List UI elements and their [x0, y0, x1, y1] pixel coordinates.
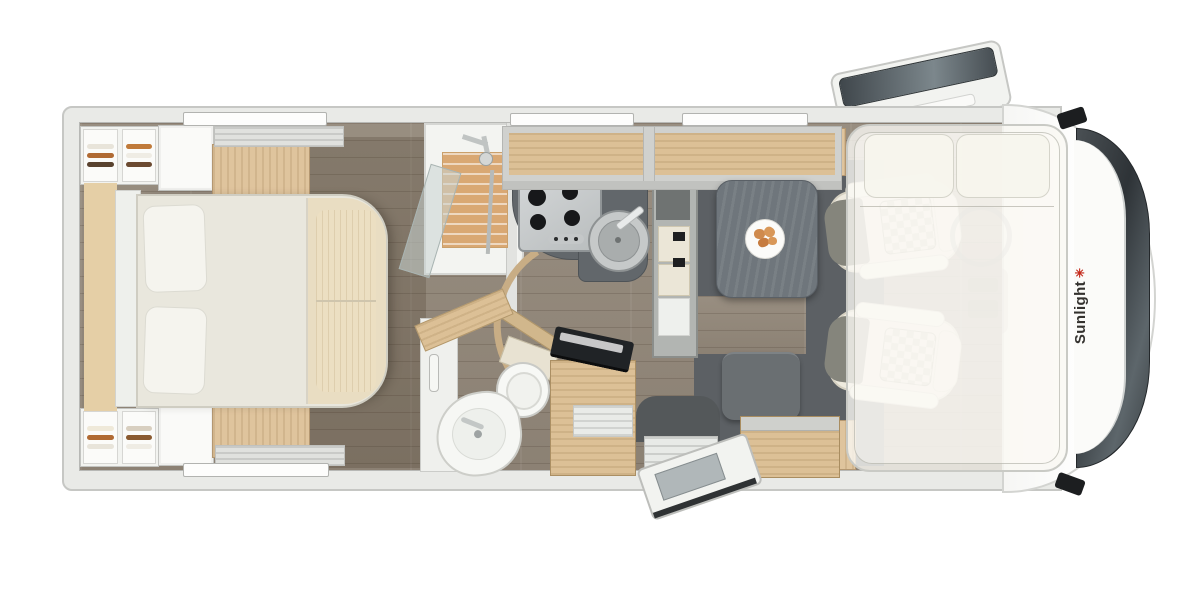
pillow-bottom: [143, 306, 208, 395]
dinette-table: [716, 180, 818, 298]
window-bedroom-bottom: [183, 463, 329, 477]
wardrobe-bottom: [80, 408, 159, 467]
corridor-floor: [694, 296, 806, 354]
wardrobe-clothes: [83, 129, 118, 182]
island-bed: [136, 194, 388, 408]
fridge-latch: [673, 232, 685, 241]
brand-logo-text: Sunlight: [1072, 281, 1089, 344]
window-bedroom-top: [183, 112, 327, 126]
window-kitchen-top-2: [682, 113, 808, 126]
nightstand-top: [158, 125, 214, 191]
side-seat: [722, 352, 800, 420]
fridge-door-panel: [658, 264, 690, 296]
motorhome-floorplan: Sunlight ✳: [0, 0, 1200, 600]
nightstand-bottom: [158, 401, 214, 466]
roof-vent-top: [214, 126, 344, 147]
wardrobe-clothes: [122, 411, 157, 464]
overhead-locker-wood: [509, 133, 835, 175]
overhead-locker-divider: [643, 127, 655, 189]
window-kitchen-top-1: [510, 113, 634, 126]
burner: [564, 210, 580, 226]
tv-cabinet-step: [573, 405, 633, 437]
wing-mirror-bottom: [1054, 472, 1086, 497]
drop-down-bed-seam: [860, 206, 1054, 207]
croissant: [768, 237, 777, 245]
wardrobe-top: [80, 126, 159, 185]
towel-bar: [429, 354, 439, 392]
round-sink: [588, 210, 650, 272]
sink-drain: [615, 237, 621, 243]
burner: [528, 188, 546, 206]
tv-cabinet: [550, 360, 636, 476]
headboard-panel: [84, 183, 117, 411]
brand-logo-rotated: Sunlight ✳: [1069, 244, 1091, 368]
fridge-lower-panel: [658, 298, 690, 336]
bed-foot-seam: [316, 300, 376, 302]
brand-sun-icon: ✳: [1073, 268, 1087, 278]
shower-head-disc: [479, 152, 493, 166]
burner: [530, 214, 546, 230]
bed-foot-section: [306, 198, 386, 404]
drop-down-bed-pillow-left: [864, 134, 954, 198]
drop-down-bed-pillow-right: [956, 134, 1050, 198]
wardrobe-clothes: [122, 129, 157, 182]
pillow-top: [143, 204, 208, 293]
wardrobe-clothes: [83, 411, 118, 464]
fridge-latch: [673, 258, 685, 267]
drop-down-bed-overlay: [846, 124, 1068, 472]
hob-knob-strip: [548, 234, 584, 244]
bench-top-rim: [741, 417, 839, 431]
